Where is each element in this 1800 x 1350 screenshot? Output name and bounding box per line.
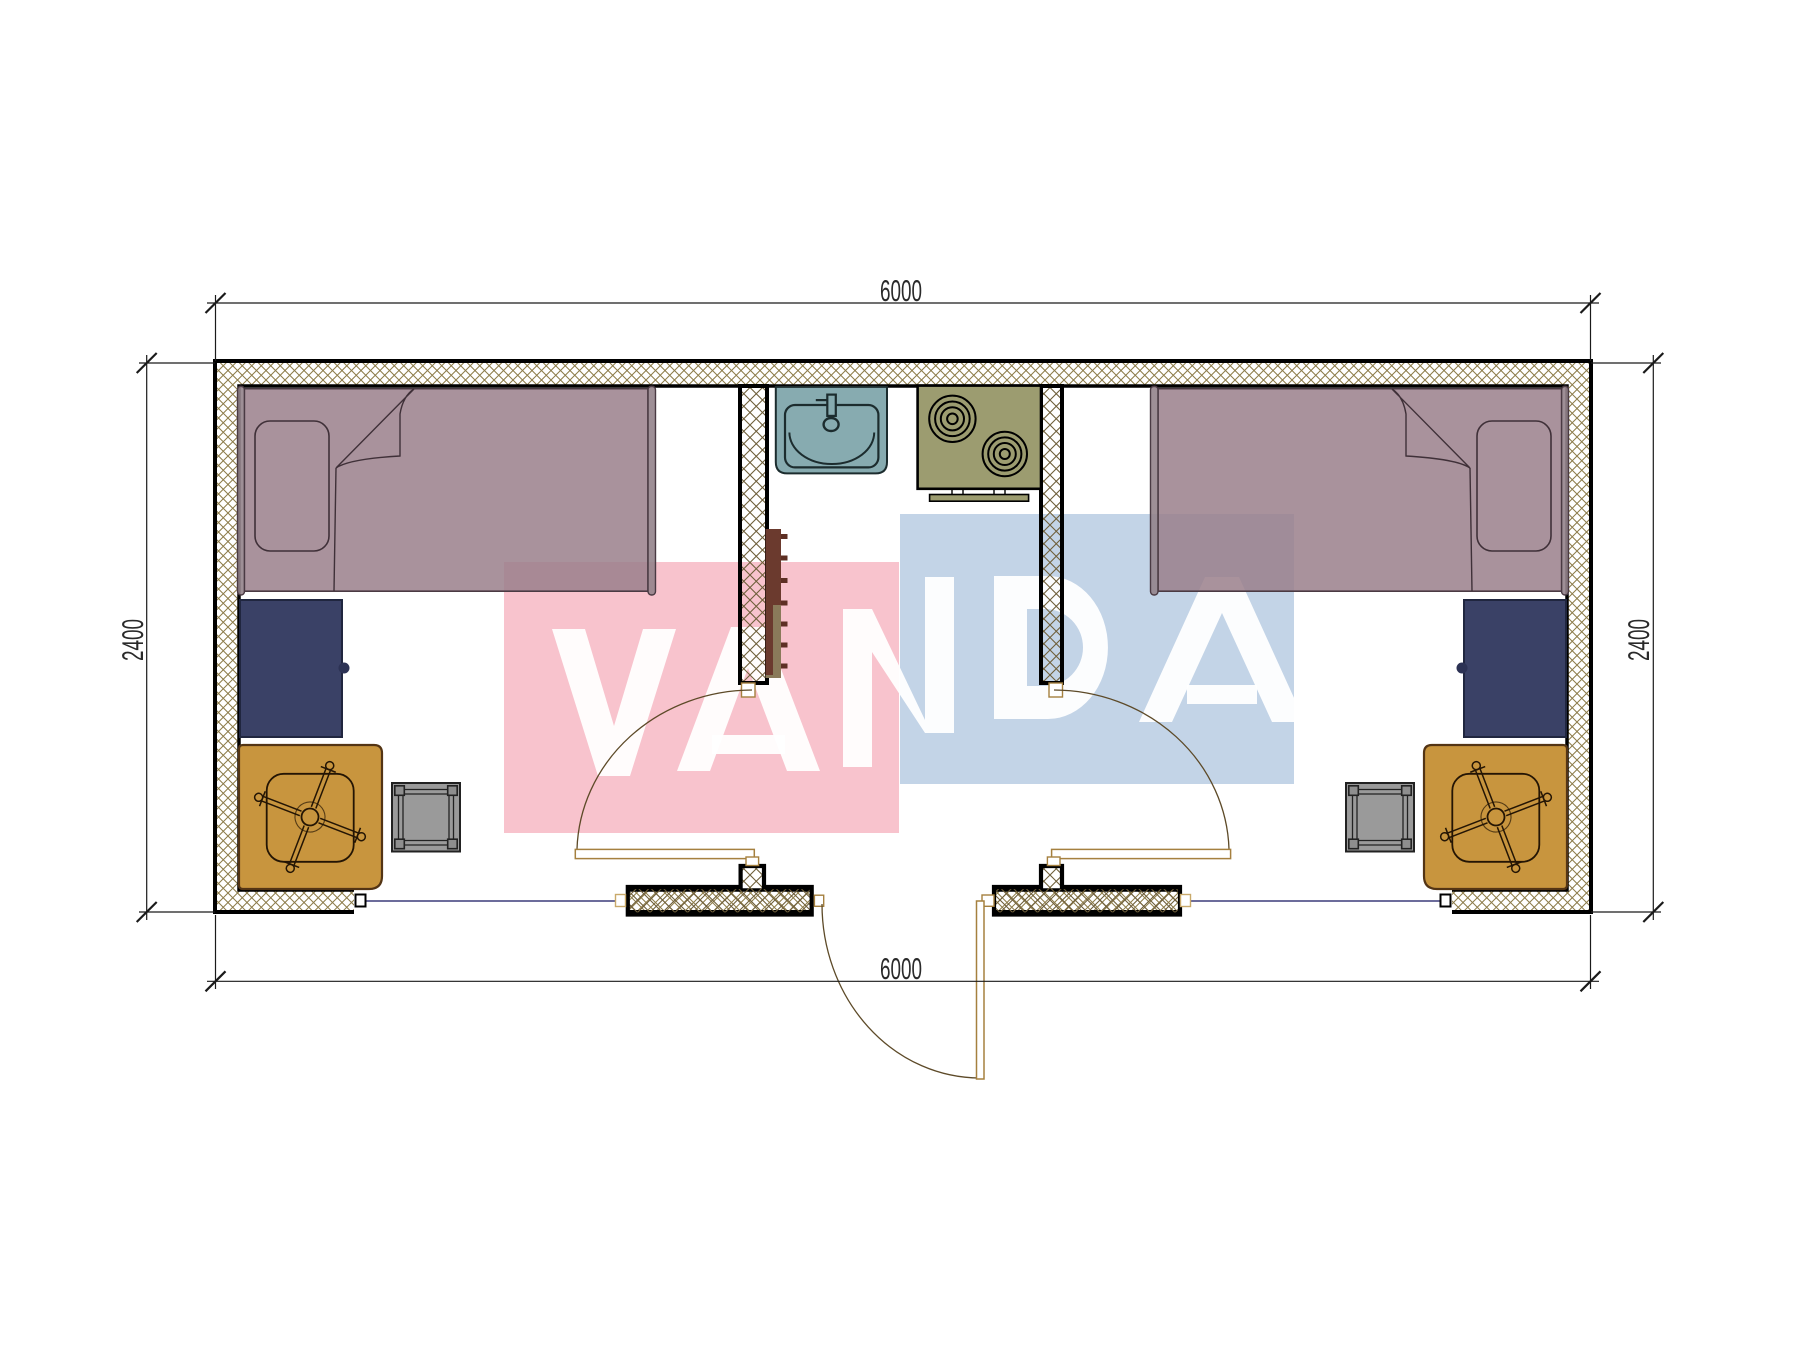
- svg-text:2400: 2400: [1623, 619, 1656, 661]
- svg-text:2400: 2400: [117, 619, 150, 661]
- svg-text:6000: 6000: [880, 953, 922, 986]
- svg-text:6000: 6000: [880, 275, 922, 308]
